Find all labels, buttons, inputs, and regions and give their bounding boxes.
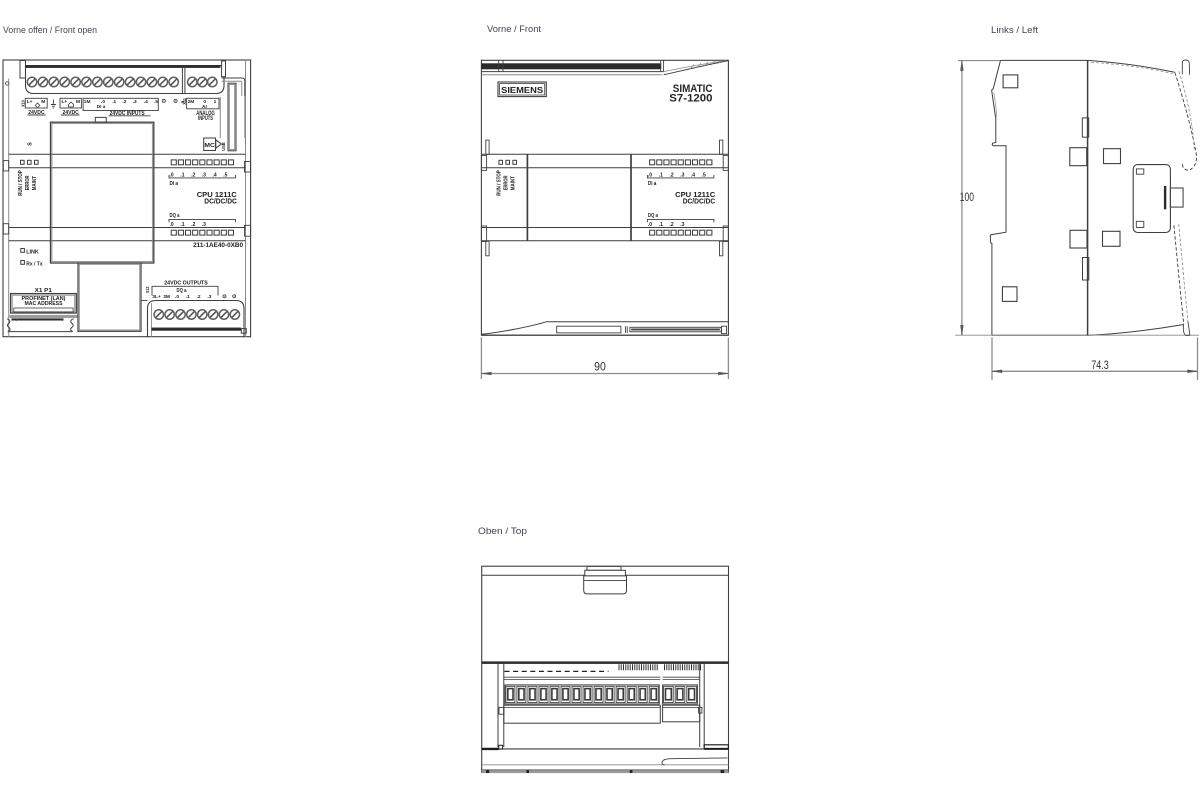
svg-text:SIEMENS: SIEMENS [501,86,544,95]
svg-text:S7-1200: S7-1200 [669,92,712,104]
svg-text:X12: X12 [145,286,150,293]
svg-text:RUN / STOP: RUN / STOP [18,170,24,196]
svg-text:.1: .1 [180,222,184,228]
svg-text:1M: 1M [84,99,91,105]
svg-text:2M: 2M [188,99,195,105]
svg-text:.2: .2 [197,294,201,300]
svg-text:X1 P1: X1 P1 [35,288,53,294]
svg-text:DI a: DI a [648,181,657,187]
svg-text:Vorne offen / Front open: Vorne offen / Front open [3,25,97,36]
svg-text:Oben / Top: Oben / Top [478,526,527,537]
svg-text:.0: .0 [175,294,179,300]
svg-text:S: S [28,142,34,146]
svg-text:.1: .1 [186,294,190,300]
svg-text:MAC ADDRESS: MAC ADDRESS [25,301,63,307]
svg-text:1: 1 [214,99,217,105]
svg-text:.2: .2 [191,222,195,228]
svg-text:.1: .1 [112,99,116,105]
svg-text:.3: .3 [133,99,137,105]
svg-text:DC/DC/DC: DC/DC/DC [204,196,237,205]
svg-text:100: 100 [960,190,974,204]
svg-text:L+: L+ [62,99,68,105]
svg-text:M: M [76,99,80,105]
svg-text:MAINT: MAINT [32,176,38,190]
svg-text:DI a: DI a [170,181,179,187]
svg-text:AI: AI [202,104,207,110]
svg-text:LINK: LINK [26,249,39,255]
svg-text:X10: X10 [20,100,25,107]
svg-text:MAINT: MAINT [510,176,516,190]
svg-text:Vorne / Front: Vorne / Front [487,24,541,35]
svg-text:ERROR: ERROR [25,175,31,190]
svg-text:.1: .1 [659,222,663,228]
svg-text:90: 90 [594,359,606,373]
svg-text:INPUTS: INPUTS [198,116,213,122]
svg-text:3M: 3M [163,294,170,300]
svg-text:Links / Left: Links / Left [991,25,1038,36]
svg-text:.3: .3 [680,222,684,228]
svg-text:3L+: 3L+ [152,294,161,300]
svg-text:ERROR: ERROR [503,175,509,190]
svg-text:211-1AE40-0XB0: 211-1AE40-0XB0 [193,242,243,249]
svg-text:USB: USB [221,142,226,151]
svg-text:.2: .2 [122,99,126,105]
svg-text:24VDC OUTPUTS: 24VDC OUTPUTS [164,280,208,286]
svg-text:74.3: 74.3 [1091,358,1109,372]
svg-text:M: M [41,99,45,105]
svg-text:DI a: DI a [97,104,106,110]
svg-text:Rx / Tx: Rx / Tx [26,261,43,267]
svg-text:.0: .0 [170,222,174,228]
svg-text:DQ a: DQ a [648,213,658,219]
svg-text:.2: .2 [670,222,674,228]
svg-text:DQ a: DQ a [170,213,180,219]
svg-text:.0: .0 [648,222,652,228]
svg-text:RUN / STOP: RUN / STOP [496,170,502,196]
svg-text:.3: .3 [207,294,211,300]
svg-text:DC/DC/DC: DC/DC/DC [683,196,716,205]
svg-text:MC: MC [204,143,215,149]
svg-text:.3: .3 [202,222,206,228]
svg-text:DQ a: DQ a [177,288,187,294]
svg-text:.4: .4 [144,99,148,105]
svg-text:.5: .5 [154,99,158,105]
svg-text:L+: L+ [27,99,33,105]
